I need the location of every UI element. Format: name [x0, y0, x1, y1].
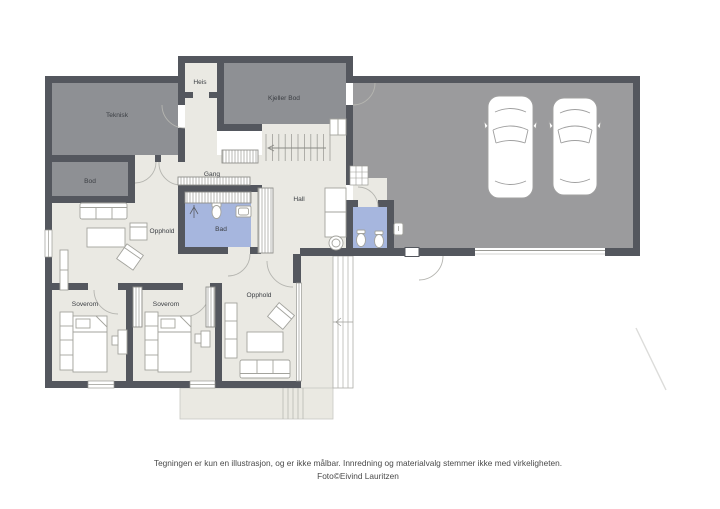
wall-fixture-icon — [394, 223, 403, 235]
window-soverom-mid — [190, 381, 215, 388]
label-hall: Hall — [293, 196, 305, 203]
floor-plan-page: Heis Teknisk Kjeller Bod Bod Gang Bad Ha… — [0, 0, 720, 509]
shelf-lower — [225, 303, 237, 358]
bed-left — [73, 316, 107, 372]
gang-sideboard — [222, 150, 258, 163]
desk-left — [118, 330, 127, 354]
terrace-deck — [180, 388, 333, 419]
armchair-upper — [130, 223, 147, 240]
label-bad: Bad — [215, 226, 227, 233]
exterior-stairs — [333, 256, 353, 388]
coffee-table-upper — [87, 228, 125, 247]
garage-door — [475, 248, 605, 256]
hall-basin-icon — [329, 236, 343, 250]
floor-plan: Heis Teknisk Kjeller Bod Bod Gang Bad Ha… — [0, 0, 720, 509]
driveway-line — [636, 328, 666, 390]
sofa-upper — [80, 203, 127, 219]
desk-mid — [201, 331, 210, 347]
sink-icon — [236, 206, 251, 217]
gang-wardrobe — [178, 177, 250, 185]
photo-credit: Foto©Eivind Lauritzen — [317, 471, 399, 481]
toilet-icon — [212, 203, 221, 219]
pass-through-window — [350, 166, 368, 185]
glass-wall-opphold — [297, 283, 302, 381]
garage-side-door-leaf — [405, 248, 419, 257]
footer: Tegningen er kun en illustrasjon, og er … — [154, 458, 562, 481]
hall-wardrobe — [258, 188, 273, 253]
kjellerbod-shelf — [330, 119, 346, 135]
label-kjeller-bod: Kjeller Bod — [268, 95, 300, 102]
label-teknisk: Teknisk — [106, 112, 129, 119]
floor-kjeller-bod — [224, 63, 346, 124]
hall-cabinet — [325, 188, 346, 237]
window-soverom-left — [88, 381, 114, 388]
door-garage-side — [419, 256, 443, 280]
chair-left — [112, 336, 118, 345]
shelf-column-left — [60, 312, 73, 370]
car-2 — [549, 98, 601, 195]
wc-toilet-icon — [375, 235, 384, 248]
shelf-column-mid — [145, 312, 158, 370]
label-gang: Gang — [204, 171, 220, 178]
chair-mid — [195, 334, 201, 343]
coffee-table-lower — [247, 332, 283, 352]
disclaimer-line: Tegningen er kun en illustrasjon, og er … — [154, 458, 562, 468]
wall-shelf-left — [60, 250, 68, 290]
bad-wardrobe — [185, 192, 251, 203]
car-1 — [484, 96, 537, 198]
label-opphold-lower: Opphold — [247, 292, 272, 299]
floor-teknisk — [52, 83, 178, 155]
label-soverom-mid: Soverom — [153, 301, 180, 308]
label-soverom-left: Soverom — [72, 301, 99, 308]
label-bod: Bod — [84, 178, 96, 185]
label-opphold-upper: Opphold — [150, 228, 175, 235]
wardrobe-mid-left — [133, 287, 142, 327]
bed-mid — [158, 316, 191, 372]
wardrobe-mid-right — [206, 287, 215, 327]
sofa-lower — [240, 360, 290, 378]
window-left-wall — [45, 230, 52, 257]
floor-heis-corridor — [185, 63, 217, 155]
label-heis: Heis — [193, 79, 207, 86]
wc-sink-icon — [357, 234, 366, 247]
